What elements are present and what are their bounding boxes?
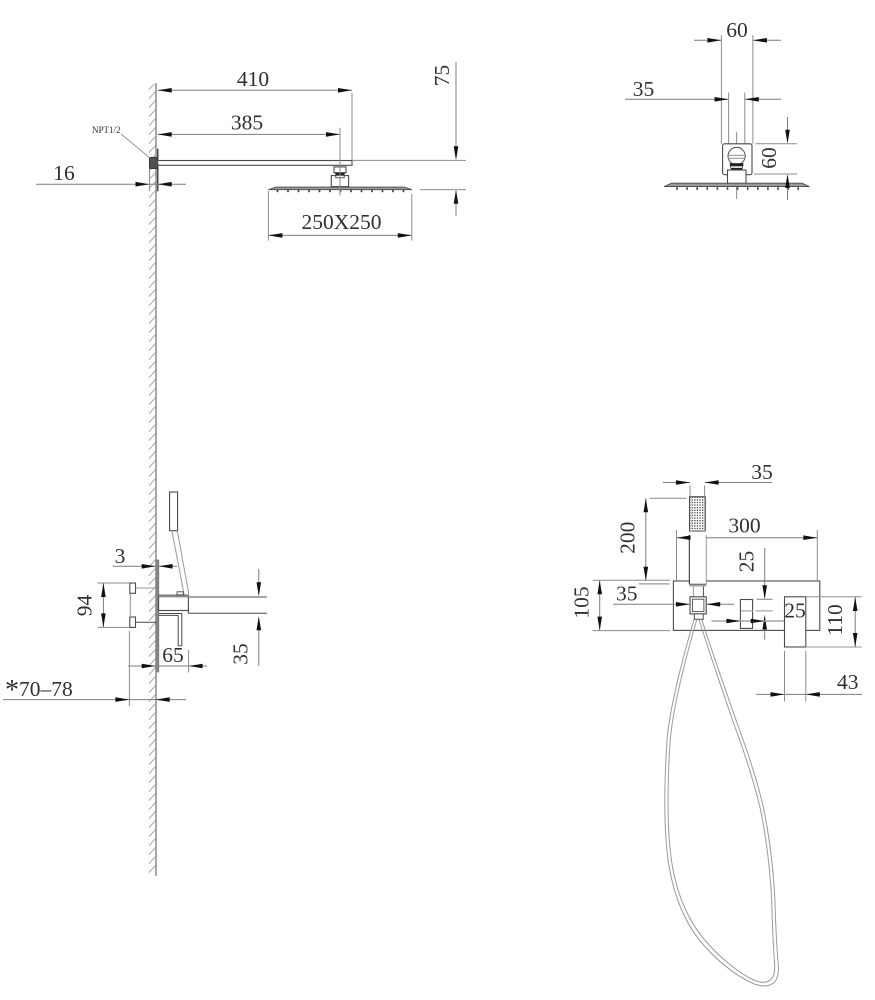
svg-text:16: 16 [53,161,75,185]
svg-text:43: 43 [837,670,859,694]
svg-text:25: 25 [734,551,758,573]
svg-text:200: 200 [615,522,639,554]
svg-text:75: 75 [430,65,454,87]
svg-text:385: 385 [231,111,263,135]
svg-text:35: 35 [229,643,253,665]
svg-text:410: 410 [237,67,269,91]
svg-text:300: 300 [728,514,760,538]
svg-text:65: 65 [162,643,184,667]
svg-text:NPT1/2: NPT1/2 [92,125,121,135]
svg-text:94: 94 [73,595,97,617]
svg-text:35: 35 [751,460,773,484]
svg-text:105: 105 [570,586,594,618]
svg-text:60: 60 [726,18,748,42]
svg-text:25: 25 [784,599,806,623]
svg-text:250X250: 250X250 [301,210,381,234]
svg-text:35: 35 [633,77,655,101]
svg-text:110: 110 [823,604,847,635]
svg-text:35: 35 [616,581,638,605]
svg-text:3: 3 [115,544,126,568]
svg-text:60: 60 [757,147,781,169]
